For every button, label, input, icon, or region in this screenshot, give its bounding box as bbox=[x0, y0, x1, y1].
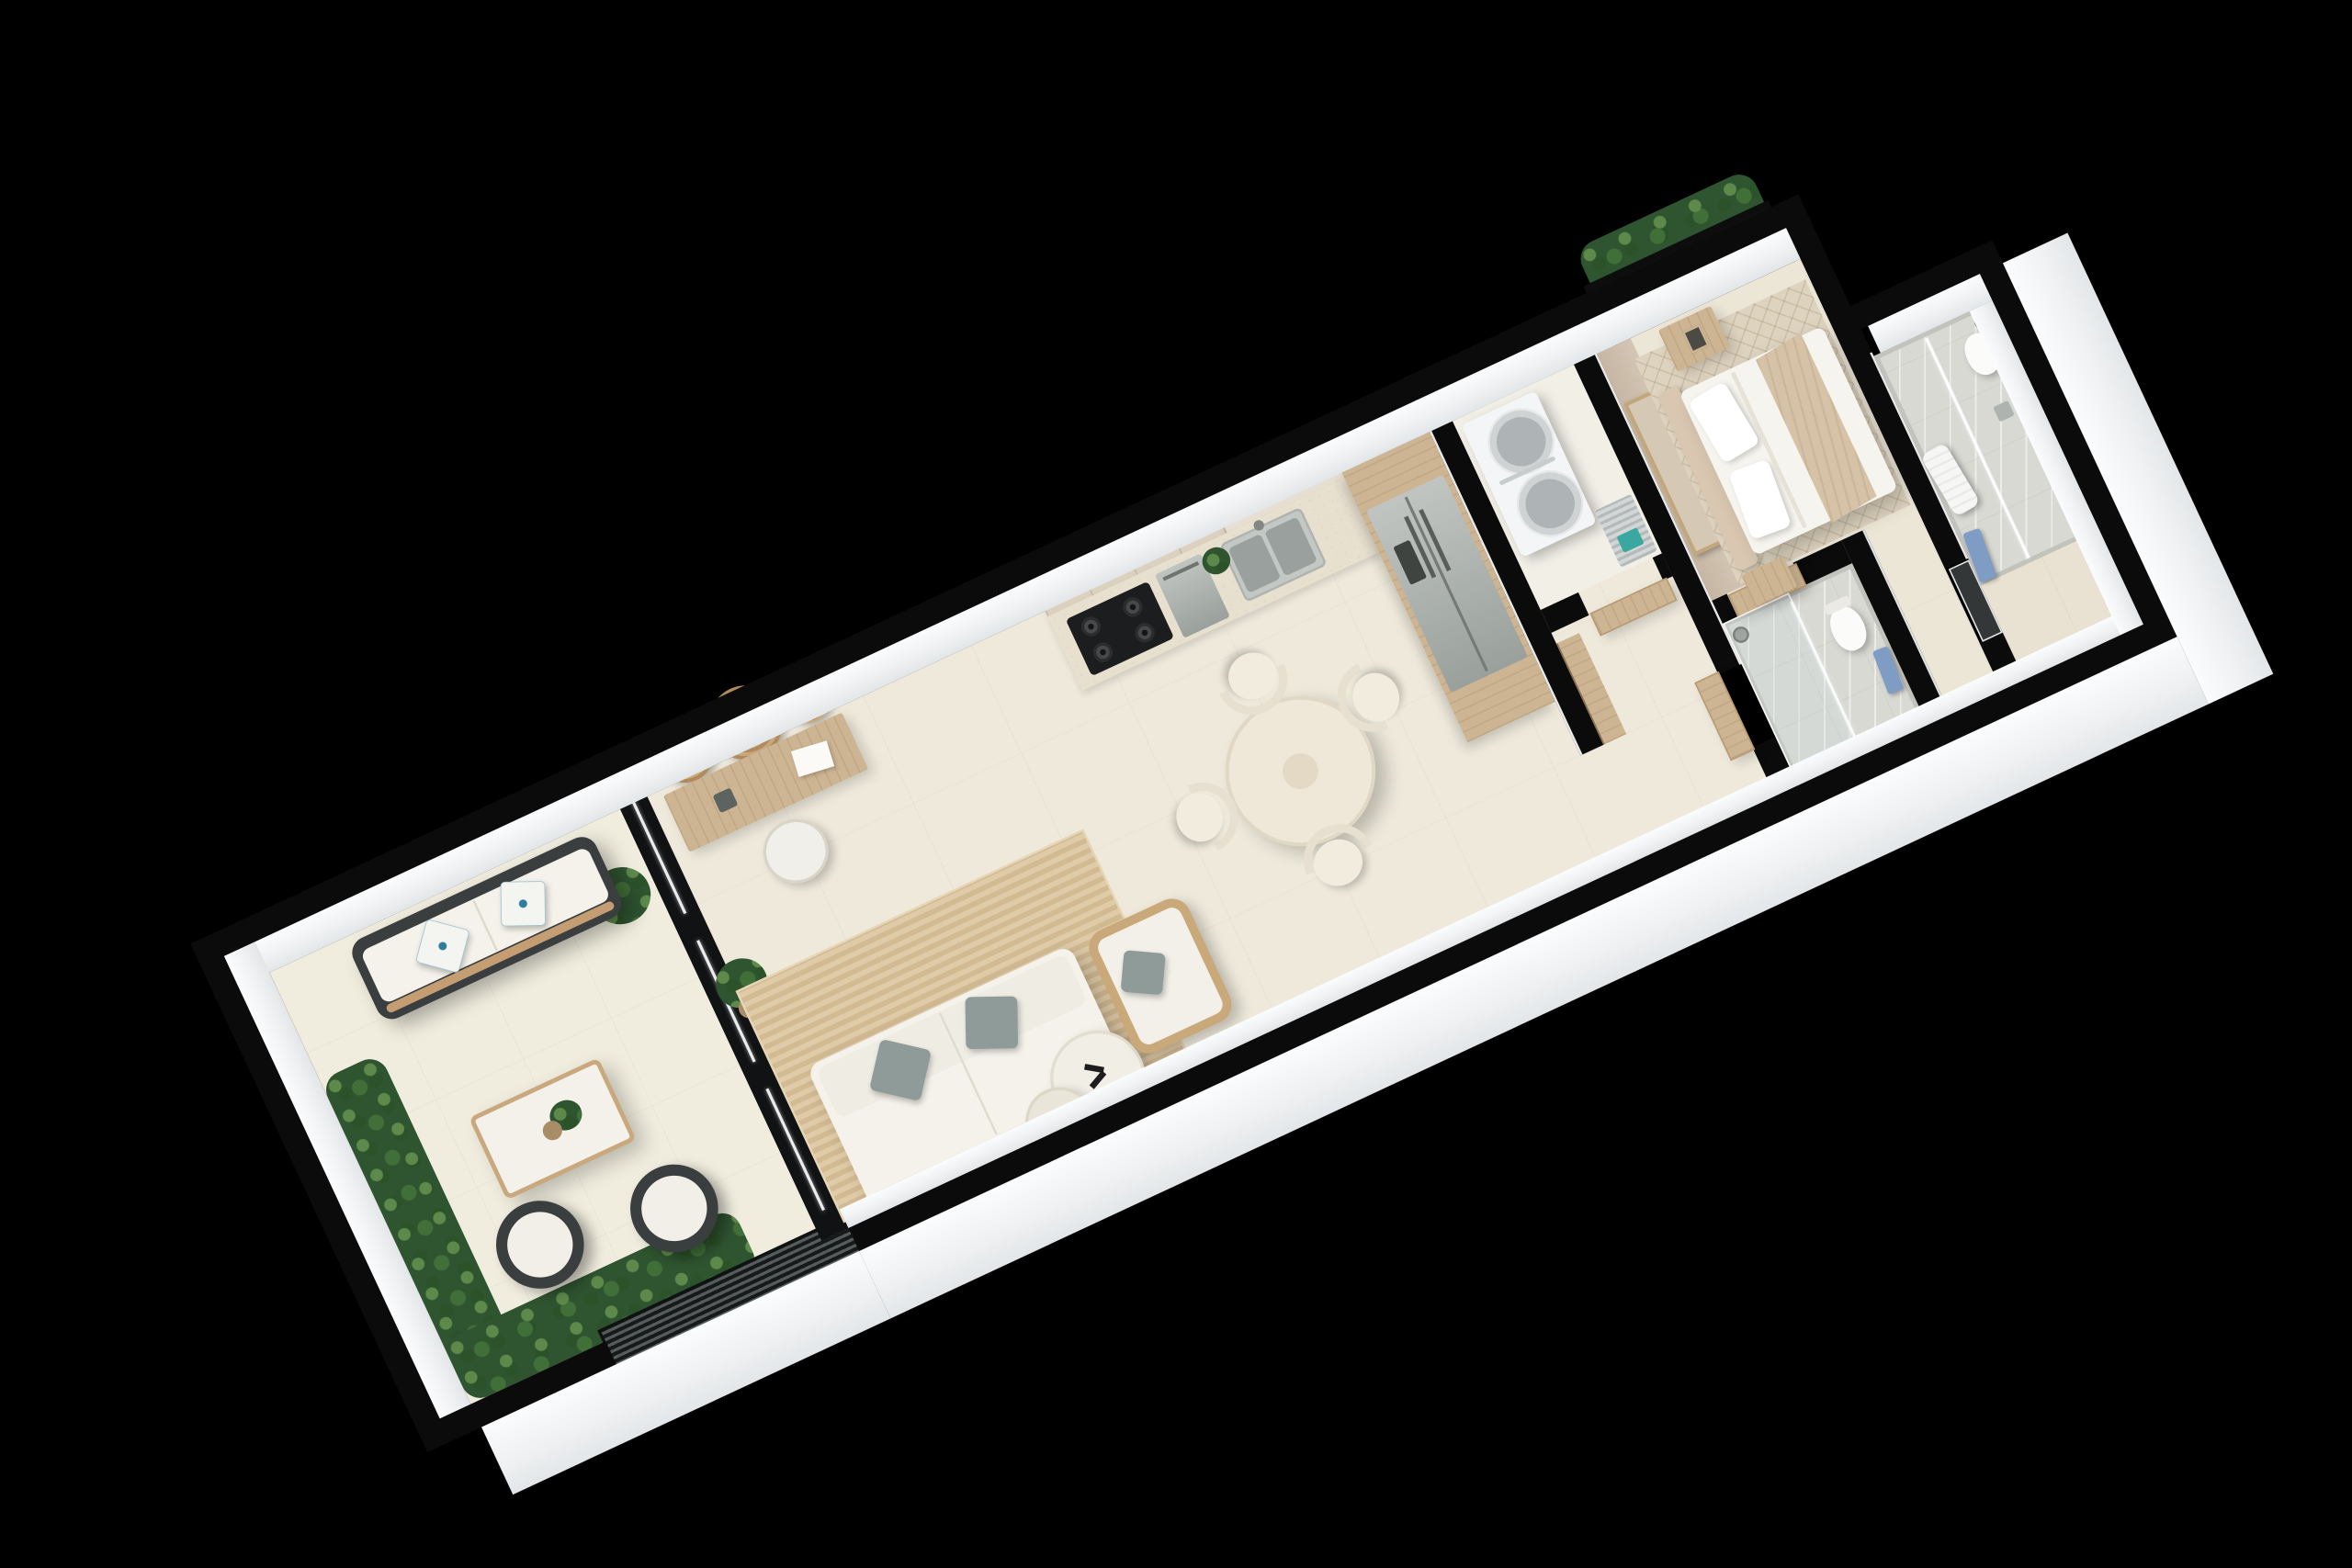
burner-2 bbox=[1120, 593, 1146, 619]
sofa-pillow-1 bbox=[869, 1038, 932, 1100]
desk-paper bbox=[791, 740, 834, 777]
armchair-pillow bbox=[1121, 950, 1166, 995]
apartment-plan bbox=[131, 54, 2295, 1568]
photo-frame bbox=[1682, 323, 1710, 353]
burner-1 bbox=[1078, 614, 1103, 639]
outdoor-sofa-pillow-2 bbox=[501, 881, 546, 926]
dining-table-pedestal bbox=[1277, 747, 1325, 795]
burner-3 bbox=[1090, 639, 1115, 665]
floorplan-stage bbox=[0, 0, 2352, 1568]
drain-bucket bbox=[1616, 527, 1644, 553]
sofa-pillow-2 bbox=[965, 996, 1018, 1049]
burner-4 bbox=[1132, 619, 1158, 645]
desk-object bbox=[712, 787, 738, 813]
